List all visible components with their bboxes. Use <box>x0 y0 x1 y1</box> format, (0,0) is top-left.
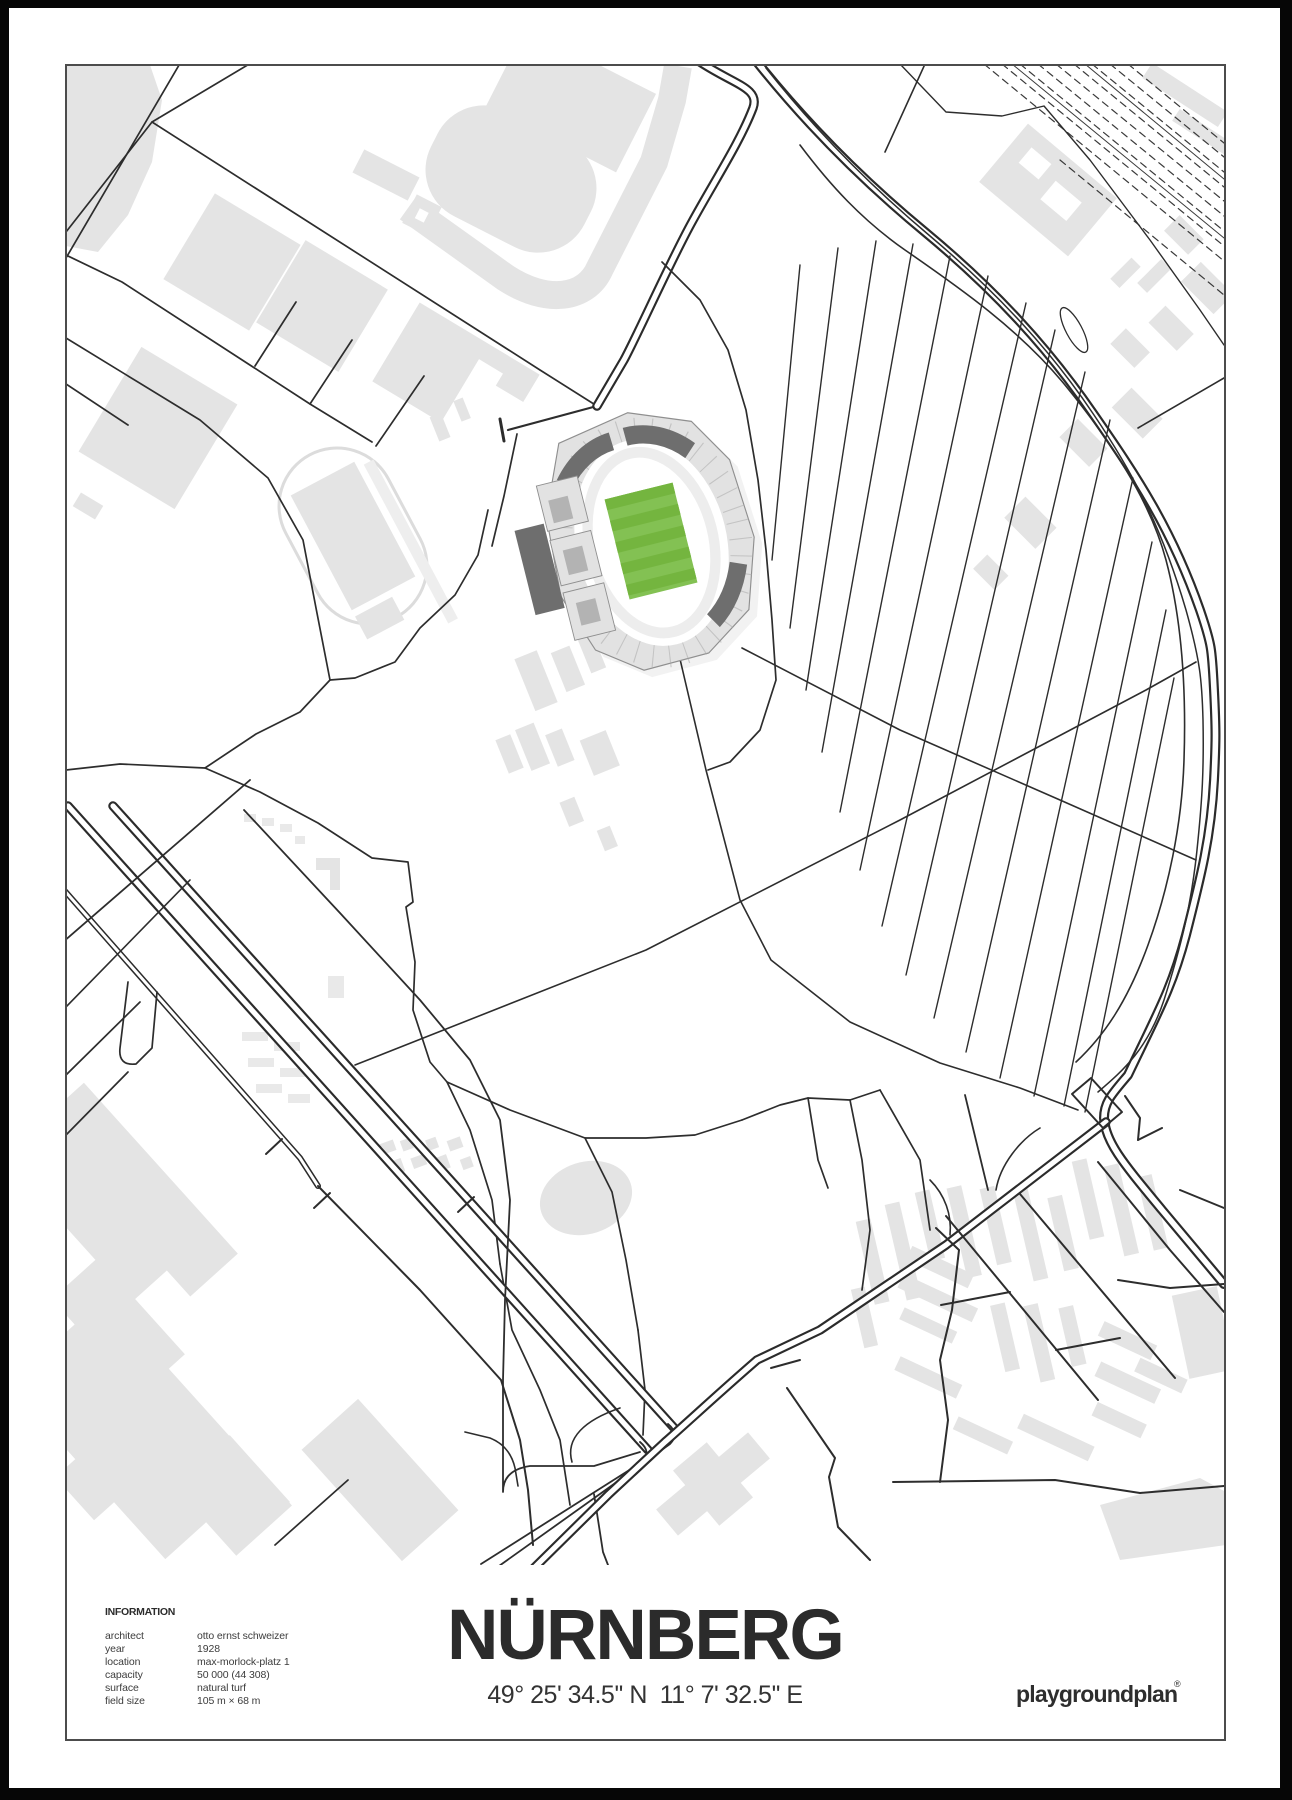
svg-text:location: location <box>105 1656 141 1668</box>
svg-text:1928: 1928 <box>197 1643 220 1655</box>
svg-text:year: year <box>105 1643 126 1655</box>
svg-text:playgroundplan: playgroundplan <box>1016 1681 1177 1707</box>
svg-text:field size: field size <box>105 1695 145 1707</box>
svg-text:capacity: capacity <box>105 1669 144 1681</box>
svg-text:INFORMATION: INFORMATION <box>105 1606 175 1618</box>
svg-text:105 m × 68 m: 105 m × 68 m <box>197 1695 261 1707</box>
svg-text:49° 25' 34.5'' N 11° 7' 32.5': 49° 25' 34.5'' N 11° 7' 32.5'' E <box>487 1681 802 1709</box>
svg-text:natural turf: natural turf <box>197 1682 246 1694</box>
svg-text:NÜRNBERG: NÜRNBERG <box>447 1596 843 1675</box>
svg-text:max-morlock-platz 1: max-morlock-platz 1 <box>197 1656 290 1668</box>
svg-text:50 000 (44 308): 50 000 (44 308) <box>197 1669 270 1681</box>
svg-text:otto ernst schweizer: otto ernst schweizer <box>197 1630 289 1642</box>
svg-text:surface: surface <box>105 1682 139 1694</box>
svg-text:architect: architect <box>105 1630 144 1642</box>
svg-text:®: ® <box>1174 1679 1181 1689</box>
